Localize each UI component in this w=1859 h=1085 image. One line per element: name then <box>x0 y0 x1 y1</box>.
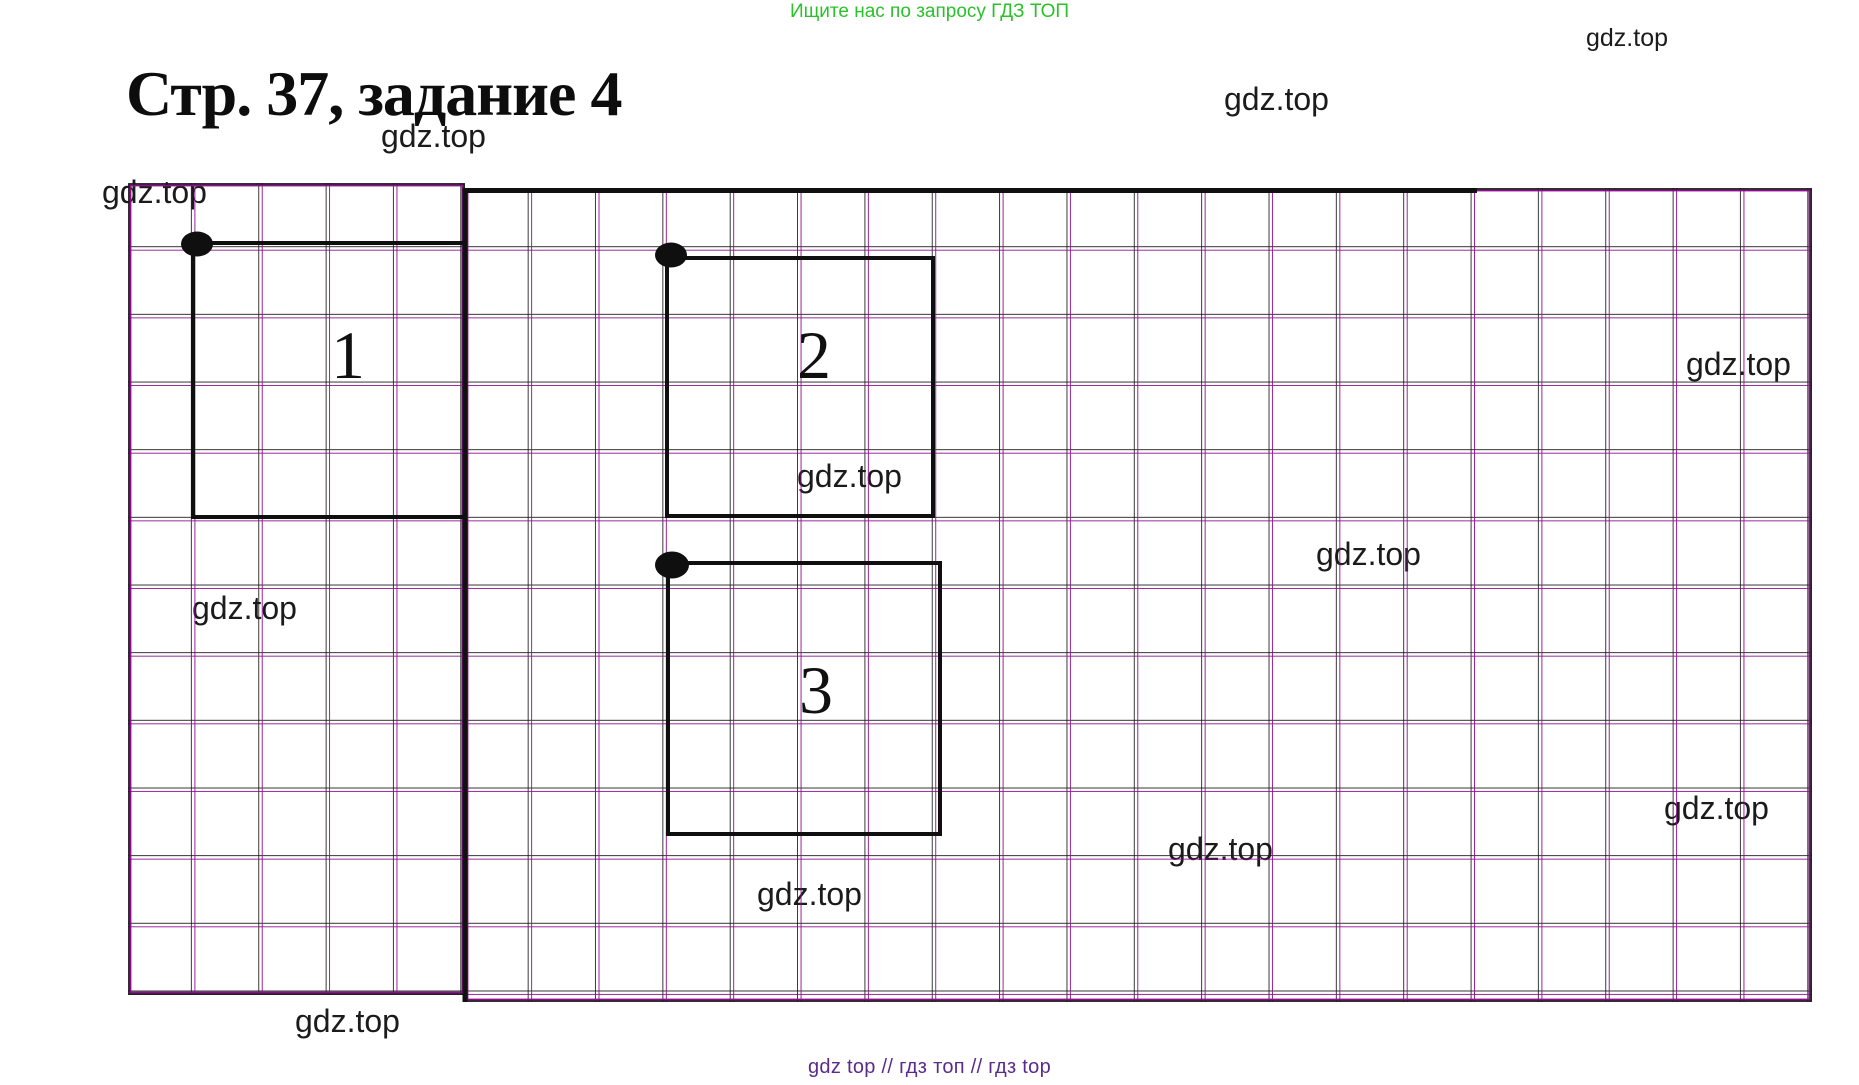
square-2-label: 2 <box>797 317 831 393</box>
footer-watermark-line: gdz top // гдз топ // гдз top <box>0 1056 1859 1079</box>
watermark: gdz.top <box>1224 83 1329 117</box>
square-3-label: 3 <box>799 652 833 728</box>
grid-paper: 1 2 3 <box>128 183 1812 1003</box>
grid-left-block <box>128 183 465 995</box>
watermark: gdz.top <box>1586 25 1668 51</box>
watermark: gdz.top <box>295 1005 400 1039</box>
watermark: gdz.top <box>381 120 486 154</box>
corner-dot-2 <box>655 243 687 268</box>
corner-dot-1 <box>181 232 213 257</box>
corner-dot-3 <box>655 552 689 579</box>
promo-banner: Ищите нас по запросу ГДЗ ТОП <box>0 1 1859 23</box>
workbook-page: Ищите нас по запросу ГДЗ ТОП gdz.top gdz… <box>0 0 1859 1085</box>
page-title: Стр. 37, задание 4 <box>126 62 621 126</box>
square-1-label: 1 <box>331 317 365 393</box>
